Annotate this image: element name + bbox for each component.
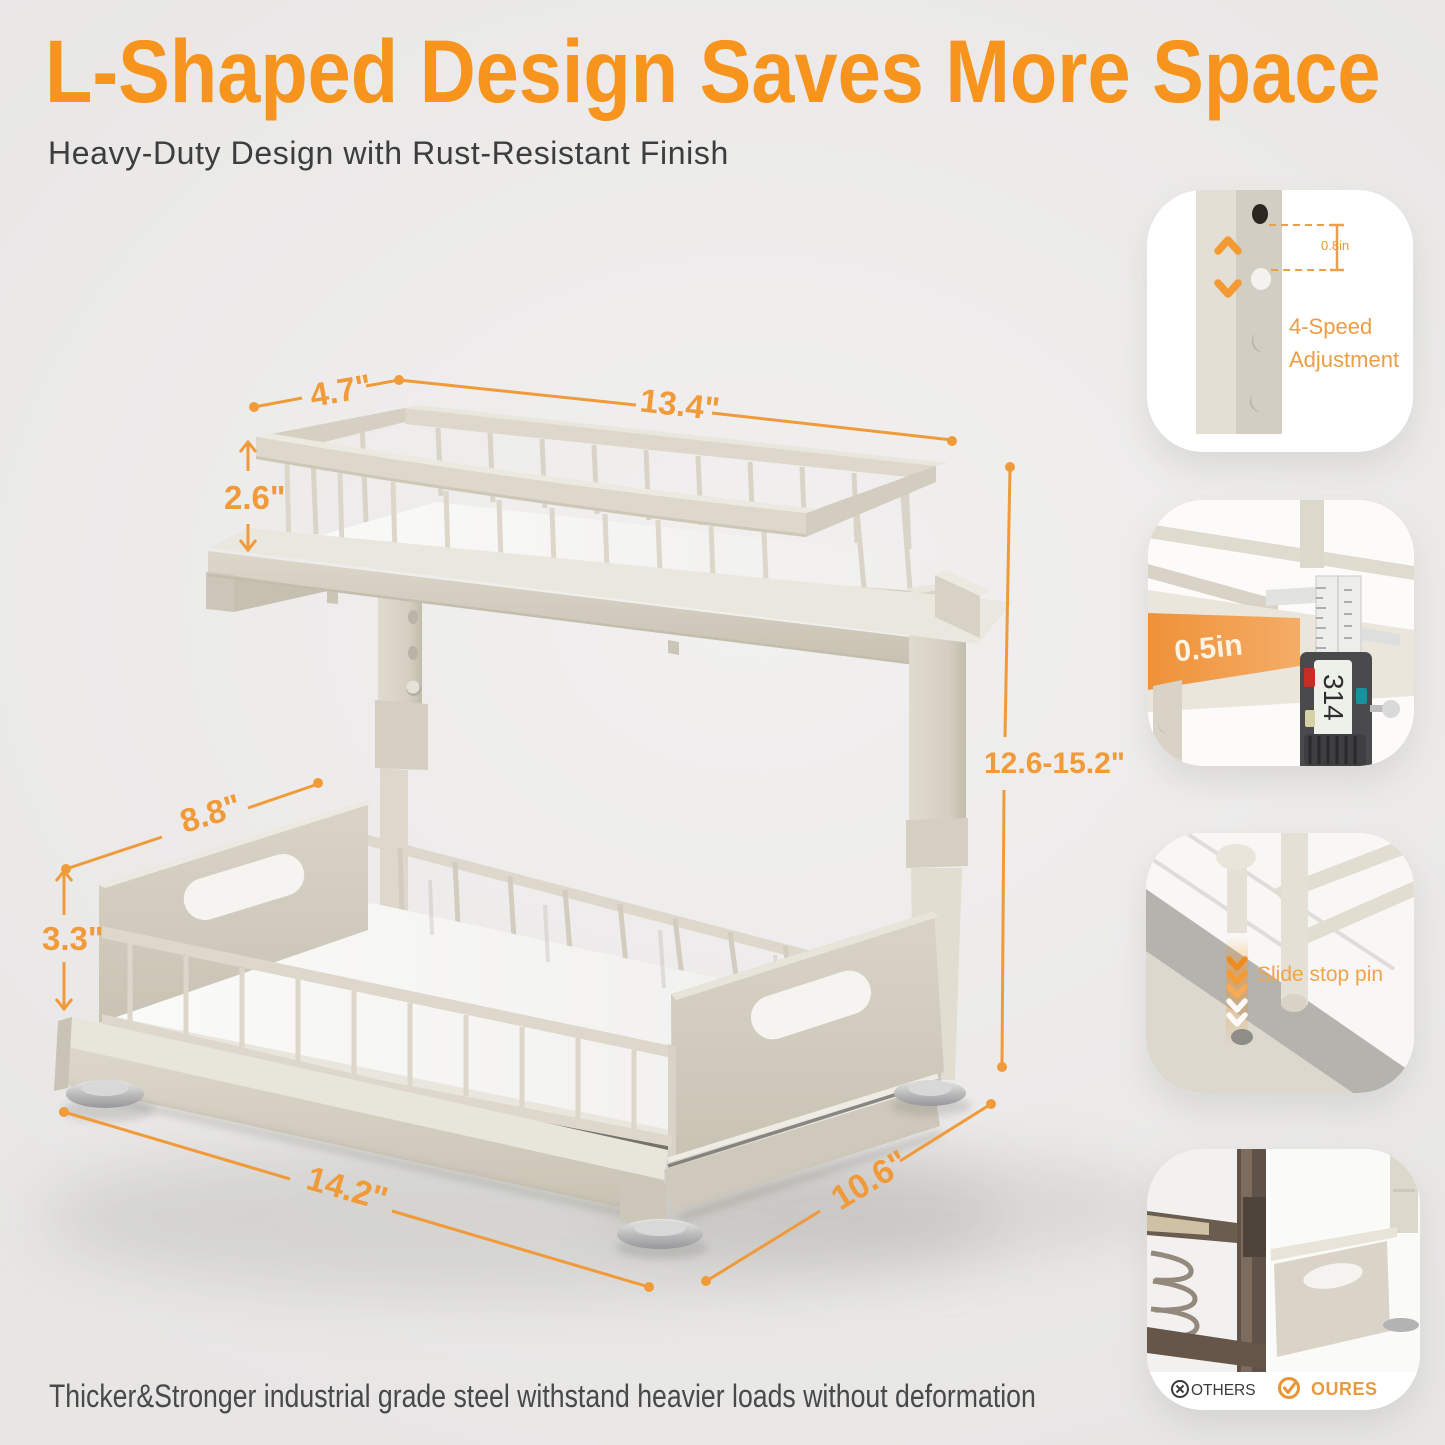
svg-text:0.8in: 0.8in [1321,238,1349,253]
svg-text:Slide stop pin: Slide stop pin [1257,963,1383,986]
svg-text:OURES: OURES [1311,1379,1378,1399]
svg-text:2.6": 2.6" [224,479,286,516]
svg-text:Adjustment: Adjustment [1289,347,1399,372]
svg-text:8.8": 8.8" [176,786,246,839]
svg-text:4-Speed: 4-Speed [1289,314,1372,339]
svg-text:4.7": 4.7" [307,367,374,414]
svg-text:12.6-15.2": 12.6-15.2" [984,747,1125,780]
svg-text:OTHERS: OTHERS [1191,1382,1256,1399]
svg-text:314: 314 [1318,674,1349,721]
svg-text:3.3": 3.3" [42,920,104,957]
svg-text:13.4": 13.4" [638,381,722,427]
